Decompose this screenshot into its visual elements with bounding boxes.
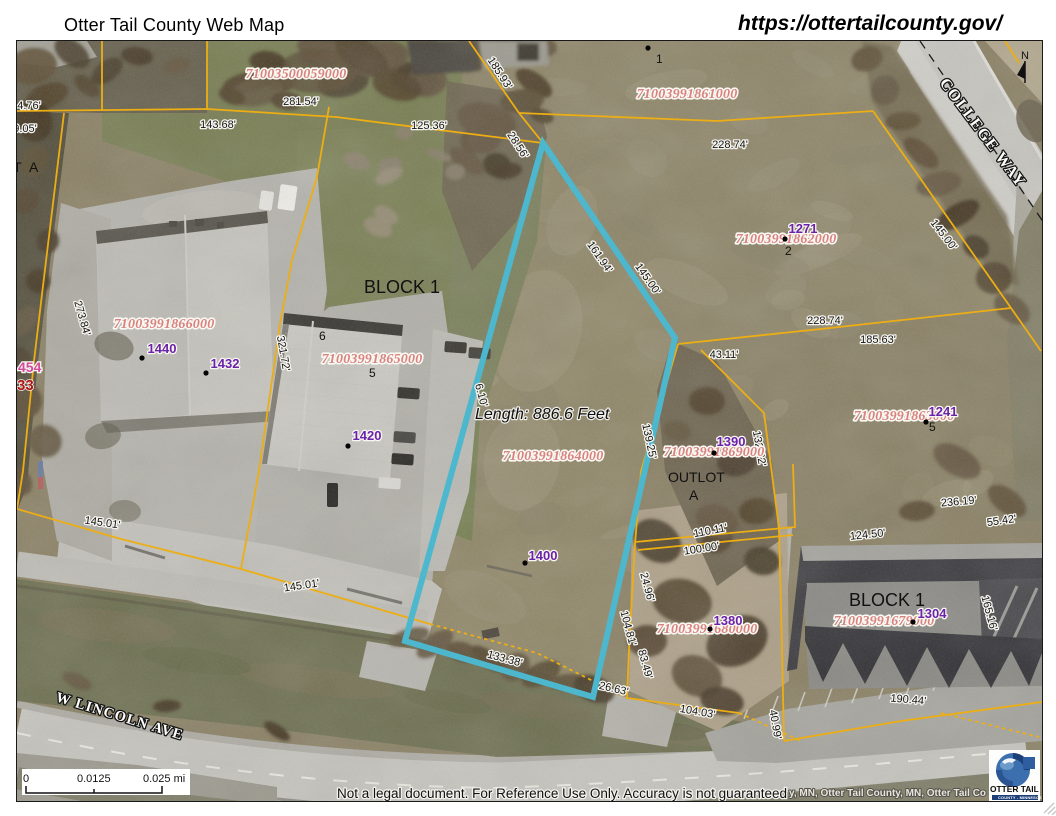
svg-text:71003991864000: 71003991864000	[503, 449, 604, 464]
svg-text:0.025 mi: 0.025 mi	[143, 773, 185, 785]
svg-text:71003991866000: 71003991866000	[114, 317, 215, 332]
svg-text:5: 5	[929, 420, 936, 434]
svg-text:Not a legal document. For Ref: Not a legal document. For Reference Use …	[337, 786, 787, 801]
svg-text:1241: 1241	[929, 404, 958, 419]
svg-text:1440: 1440	[148, 341, 177, 356]
svg-text:OUTLOT: OUTLOT	[668, 469, 725, 485]
svg-text:43.11': 43.11'	[710, 349, 739, 361]
svg-text:9.05': 9.05'	[17, 123, 37, 135]
svg-text:125.36': 125.36'	[411, 120, 447, 132]
svg-text:33: 33	[17, 377, 34, 394]
svg-text:143.68': 143.68'	[200, 119, 236, 131]
svg-text:0: 0	[23, 773, 29, 785]
svg-text:A: A	[689, 487, 699, 503]
svg-text:BLOCK 1: BLOCK 1	[364, 277, 440, 297]
svg-text:0.0125: 0.0125	[77, 773, 111, 785]
svg-text:1420: 1420	[353, 428, 382, 443]
svg-text:5: 5	[369, 366, 376, 380]
svg-text:N: N	[1021, 50, 1029, 62]
svg-text:2: 2	[785, 244, 792, 258]
svg-text:BLOCK 1: BLOCK 1	[849, 590, 925, 610]
svg-text:1390: 1390	[717, 434, 746, 449]
svg-text:1400: 1400	[529, 548, 558, 563]
svg-text:y, MN, Otter Tail County, MN,: y, MN, Otter Tail County, MN, Otter Tail…	[789, 788, 986, 799]
svg-text:71003500059000: 71003500059000	[246, 67, 347, 82]
svg-text:6: 6	[319, 329, 326, 343]
svg-text:71003991861000: 71003991861000	[637, 87, 738, 102]
svg-text:A: A	[29, 159, 39, 175]
svg-text:281.54': 281.54'	[283, 96, 319, 108]
svg-text:OTTER TAIL: OTTER TAIL	[990, 784, 1039, 794]
svg-text:1432: 1432	[211, 356, 240, 371]
svg-text:4.76': 4.76'	[17, 100, 41, 112]
svg-text:228.74': 228.74'	[712, 139, 748, 151]
svg-text:228.74': 228.74'	[807, 315, 843, 327]
svg-text:Length: 886.6 Feet: Length: 886.6 Feet	[475, 406, 610, 423]
svg-text:COUNTY - MINNESOTA: COUNTY - MINNESOTA	[998, 795, 1042, 800]
svg-text:1380: 1380	[714, 613, 743, 628]
svg-text:1: 1	[656, 52, 663, 66]
svg-text:1271: 1271	[789, 221, 818, 236]
svg-text:71003991865000: 71003991865000	[322, 352, 423, 367]
svg-text:454: 454	[18, 359, 42, 375]
svg-text:T: T	[17, 159, 22, 175]
svg-text:185.63': 185.63'	[860, 334, 896, 346]
